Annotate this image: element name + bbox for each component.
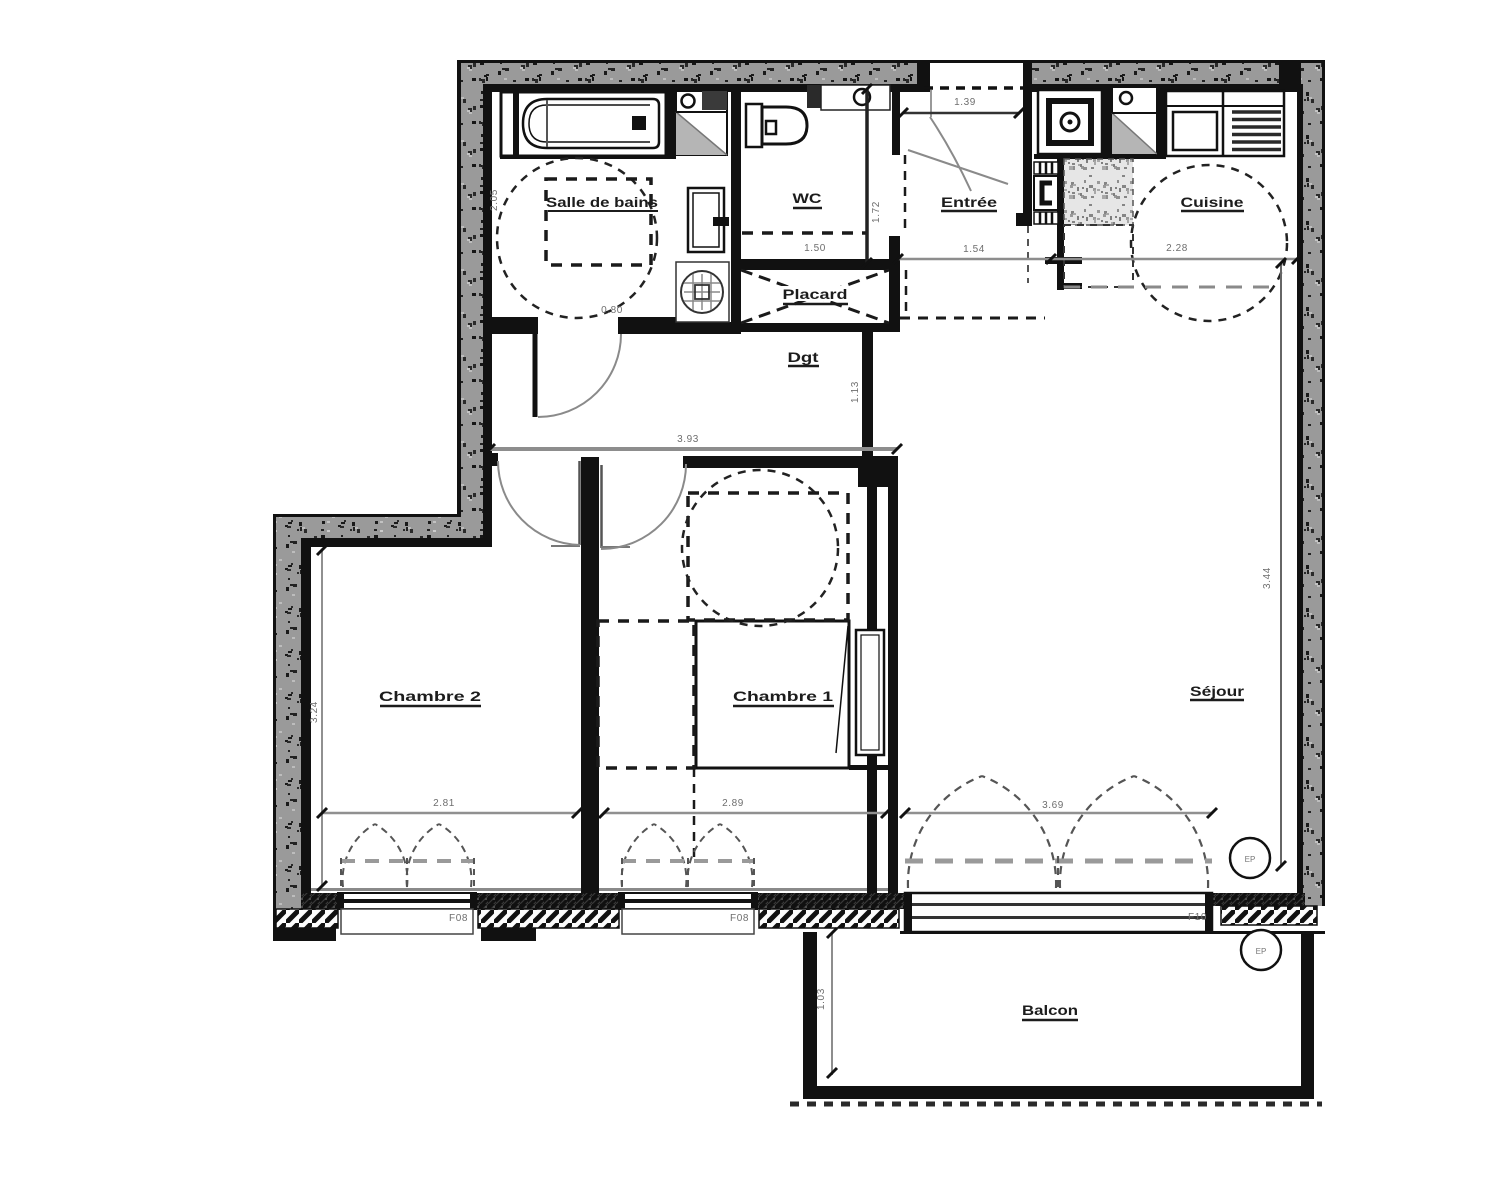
svg-text:Séjour: Séjour (1190, 683, 1245, 699)
svg-text:EP: EP (1245, 855, 1256, 864)
svg-text:WC: WC (793, 190, 822, 206)
svg-text:Salle de bains: Salle de bains (546, 194, 658, 210)
svg-text:3.69: 3.69 (1042, 800, 1064, 811)
svg-text:F08: F08 (730, 913, 749, 924)
svg-text:Placard: Placard (783, 286, 848, 302)
svg-text:1.54: 1.54 (963, 244, 985, 255)
svg-text:2.81: 2.81 (433, 798, 455, 809)
svg-text:3.44: 3.44 (1262, 567, 1273, 589)
svg-text:1.39: 1.39 (954, 97, 976, 108)
svg-text:Balcon: Balcon (1022, 1002, 1078, 1018)
svg-text:0.80: 0.80 (601, 305, 623, 316)
svg-text:1.50: 1.50 (804, 243, 826, 254)
svg-text:Cuisine: Cuisine (1181, 194, 1244, 210)
svg-text:3.24: 3.24 (309, 701, 320, 723)
svg-text:F08: F08 (449, 913, 468, 924)
svg-text:F10: F10 (1188, 912, 1207, 923)
svg-text:3.93: 3.93 (677, 434, 699, 445)
svg-text:Chambre 1: Chambre 1 (733, 688, 833, 704)
svg-text:Entrée: Entrée (941, 194, 997, 210)
svg-text:1.72: 1.72 (871, 201, 882, 223)
svg-text:Chambre 2: Chambre 2 (379, 688, 481, 704)
svg-text:1.03: 1.03 (816, 988, 827, 1010)
svg-text:2.28: 2.28 (1166, 243, 1188, 254)
svg-text:EP: EP (1256, 947, 1267, 956)
svg-text:Dgt: Dgt (788, 349, 819, 365)
svg-text:2.05: 2.05 (489, 189, 500, 211)
svg-text:2.89: 2.89 (722, 798, 744, 809)
svg-text:1.13: 1.13 (850, 381, 861, 403)
